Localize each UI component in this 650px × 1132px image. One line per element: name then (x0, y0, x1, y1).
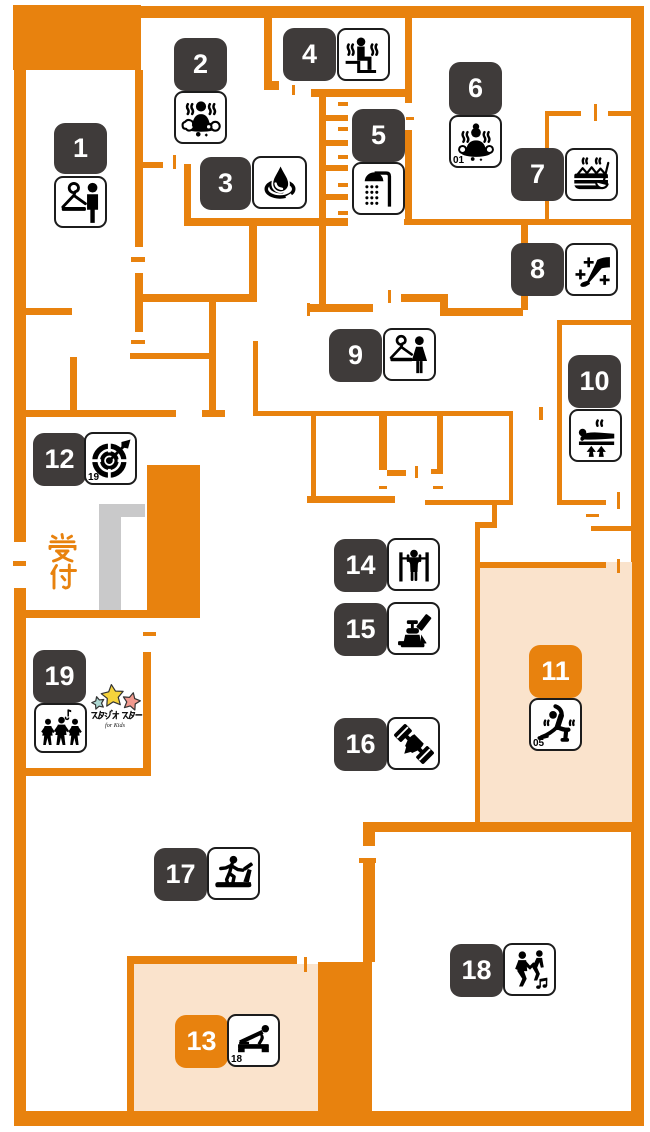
svg-text:for Kids: for Kids (105, 722, 126, 729)
